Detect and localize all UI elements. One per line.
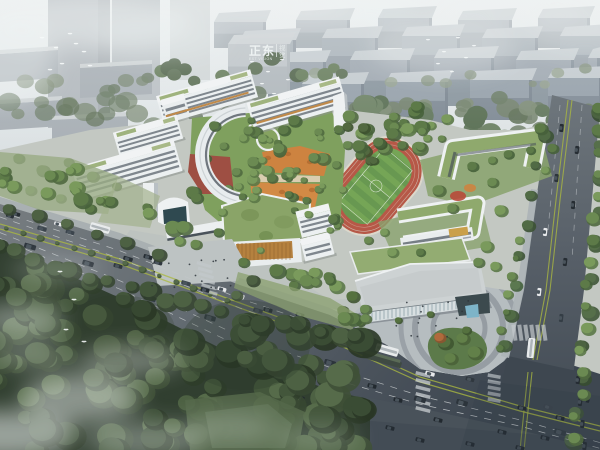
- svg-text:EST VISION: EST VISION: [249, 57, 273, 61]
- svg-text:视: 视: [279, 43, 286, 52]
- svg-text:觉: 觉: [279, 50, 286, 59]
- svg-text:正东: 正东: [249, 43, 275, 58]
